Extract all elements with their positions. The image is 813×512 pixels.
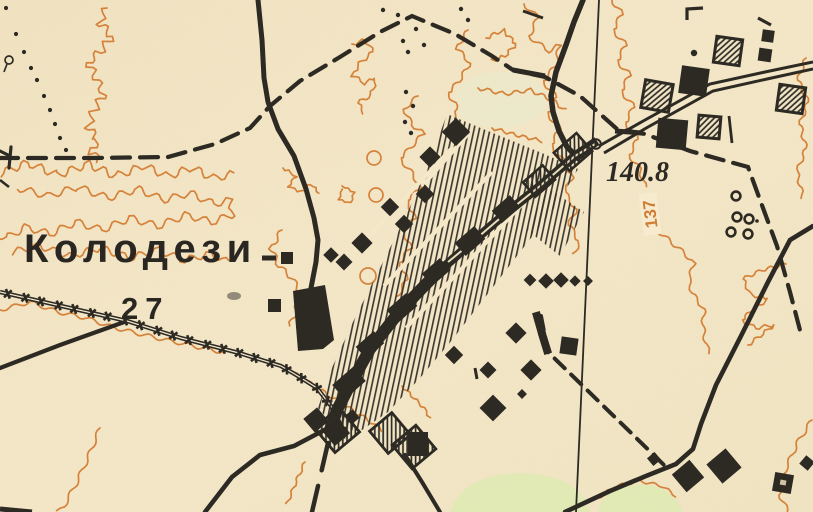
svg-text:27: 27 xyxy=(121,291,169,326)
svg-text:137: 137 xyxy=(639,199,661,229)
svg-text:140.8: 140.8 xyxy=(606,157,669,188)
svg-text:Колодези: Колодези xyxy=(24,227,257,271)
